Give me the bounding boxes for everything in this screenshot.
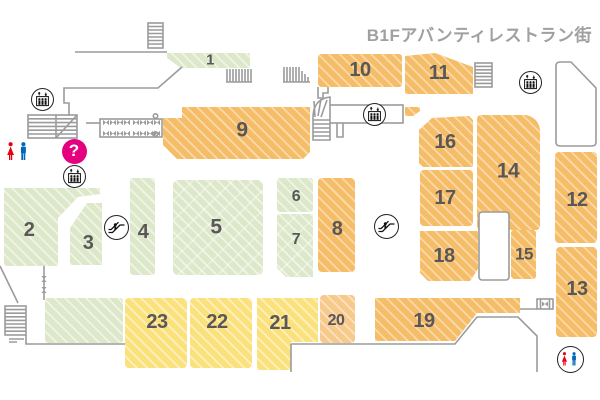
block-label-11: 11	[429, 63, 449, 83]
stairs-fan	[313, 97, 330, 140]
information-icon: ?	[62, 139, 87, 164]
block-label-22: 22	[206, 312, 227, 332]
escalator-icon	[374, 214, 399, 239]
stairs-left	[28, 115, 77, 138]
block-label-4: 4	[138, 222, 149, 242]
map-block-19	[375, 298, 520, 341]
block-label-8: 8	[332, 219, 343, 239]
block-label-3: 3	[83, 233, 94, 253]
page-title: B1Fアバンティレストラン街	[367, 21, 592, 46]
floor-map-canvas: { "title": "B1Fアバンティレストラン街", "info": { "…	[0, 0, 600, 400]
wall-notch	[337, 123, 343, 137]
comb-stairs-b	[283, 67, 310, 82]
map-block-23	[125, 298, 187, 368]
stairs-top-right	[475, 63, 492, 87]
woman-figure	[7, 142, 14, 160]
block-label-14: 14	[497, 161, 519, 182]
escalator-chain-horizontal	[86, 114, 162, 137]
stairs-top-left	[148, 23, 163, 48]
block-label-18: 18	[433, 246, 454, 266]
block-label-1: 1	[206, 53, 214, 68]
elevator-icon	[63, 165, 86, 188]
map-block-21	[257, 298, 318, 370]
bowtie-row-top	[103, 120, 160, 125]
block-label-2: 2	[24, 220, 35, 240]
restroom-circle-icon	[557, 346, 584, 373]
wall-line	[0, 266, 18, 303]
man-figure	[21, 142, 26, 160]
restroom-icon	[6, 142, 30, 167]
block-label-10: 10	[349, 60, 370, 80]
bowtie-vertical	[41, 276, 46, 282]
room-outline	[556, 62, 596, 146]
bowtie-row-bottom	[103, 131, 160, 136]
escalator-icon	[104, 215, 129, 240]
block-label-9: 9	[236, 120, 247, 141]
doorway-glyph	[537, 299, 553, 309]
green-block-unlabeled	[45, 298, 123, 343]
block-label-19: 19	[413, 311, 434, 331]
block-label-7: 7	[292, 232, 300, 248]
block-label-17: 17	[434, 188, 455, 208]
wall-zigzag	[318, 87, 328, 98]
corridor	[317, 105, 403, 123]
elevator-icon	[363, 103, 386, 126]
block-label-16: 16	[434, 132, 455, 152]
elevator-icon	[31, 88, 54, 111]
orange-fragment	[405, 107, 420, 116]
block-label-23: 23	[146, 312, 167, 332]
block-label-6: 6	[292, 189, 300, 205]
comb-stairs-a	[226, 69, 252, 82]
block-label-15: 15	[515, 246, 533, 263]
elevator-icon	[519, 71, 542, 94]
question-mark: ?	[69, 141, 79, 161]
stairs-bottom-left	[5, 306, 26, 342]
block-label-12: 12	[566, 190, 587, 210]
map-block-22	[190, 298, 252, 368]
block-label-21: 21	[269, 313, 290, 333]
block-label-20: 20	[328, 313, 345, 329]
bowtie-vertical	[41, 287, 46, 293]
man-figure	[572, 352, 576, 365]
woman-figure	[562, 352, 567, 365]
bowtie-doorway	[542, 301, 548, 306]
wall-line	[64, 67, 182, 118]
block-label-13: 13	[566, 279, 587, 299]
block-label-5: 5	[210, 217, 221, 238]
